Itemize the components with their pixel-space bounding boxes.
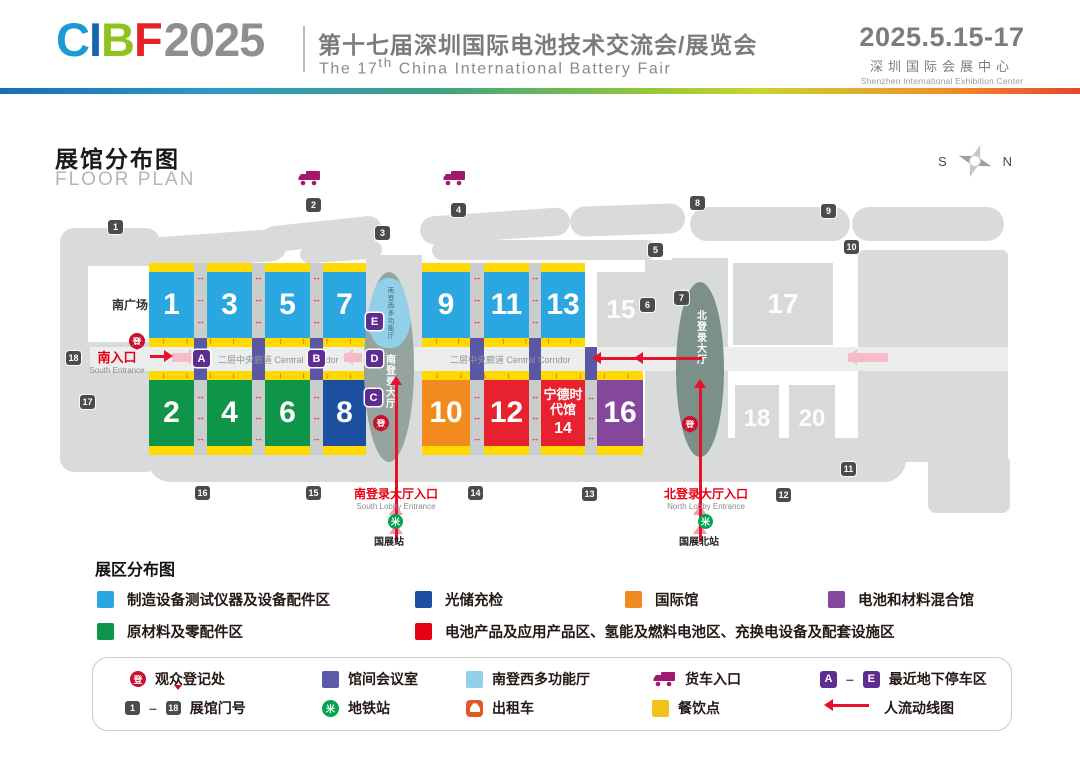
- transfer-arrow-icon: [312, 316, 321, 326]
- hall-2: 2: [149, 380, 194, 446]
- gate-16: 16: [195, 486, 210, 500]
- transfer-arrow-icon: [531, 272, 540, 282]
- legend-truck-label: 货车入口: [685, 669, 741, 689]
- metro-icon: 米: [388, 514, 403, 529]
- transfer-arrow-icon: [254, 391, 263, 401]
- flow-up-arrow-icon: [457, 337, 461, 346]
- flow-down-arrow-icon: [208, 371, 212, 380]
- transfer-arrow-icon: [531, 433, 540, 443]
- legend-swatch-yellow: [652, 700, 669, 717]
- gate-10: 10: [844, 240, 859, 254]
- metro-glyph: 米: [391, 515, 400, 528]
- legend-food-label: 餐饮点: [678, 698, 720, 718]
- transfer-arrow-icon: [473, 433, 482, 443]
- transfer-arrows: [194, 385, 207, 449]
- transfer-arrow-icon: [312, 433, 321, 443]
- flow-up-arrow-icon: [208, 337, 212, 346]
- gate-15: 15: [306, 486, 321, 500]
- hall-17: 17: [733, 263, 833, 345]
- transfer-arrow-icon: [254, 316, 263, 326]
- transfer-arrow-icon: [312, 294, 321, 304]
- logo-letter: F: [134, 13, 162, 66]
- cibf-logo: CIBF2025: [56, 16, 264, 63]
- legend-mixed-label: 电池和材料混合馆: [858, 589, 974, 610]
- transfer-arrows: [252, 266, 265, 332]
- legend-metro: 米 地铁站: [322, 698, 390, 718]
- registration-badge: 登: [682, 416, 698, 432]
- gate-13: 13: [582, 487, 597, 501]
- gate-badge-icon: 1: [125, 701, 140, 715]
- entrance-arrow-head: [164, 350, 179, 362]
- transfer-arrow-icon: [196, 272, 205, 282]
- transfer-arrow-icon: [196, 433, 205, 443]
- transfer-arrow-icon: [531, 412, 540, 422]
- south-entrance-en: South Entrance: [86, 366, 148, 375]
- transfer-arrows: [252, 385, 265, 449]
- transfer-arrow-icon: [531, 316, 540, 326]
- flow-down-arrow-icon: [255, 371, 259, 380]
- legend-meeting-label: 馆间会议室: [348, 669, 418, 689]
- parking-badge-c: C: [365, 389, 382, 406]
- transfer-arrow-icon: [196, 391, 205, 401]
- building-shape: [570, 203, 686, 237]
- transfer-arrow-icon: [312, 272, 321, 282]
- compass-north-label: N: [1003, 154, 1012, 169]
- logo-letter: C: [56, 13, 89, 66]
- legend-materials-label: 原材料及零配件区: [127, 621, 243, 642]
- legend-registration-label: 观众登记处: [155, 669, 225, 689]
- dash: –: [846, 671, 854, 687]
- flow-up-arrow-icon: [546, 337, 550, 346]
- hall-12: 12: [484, 380, 529, 446]
- north-lobby-entrance-label: 北登录大厅入口 North Lobby Entrance: [640, 485, 772, 511]
- registration-badge: 登: [373, 415, 389, 431]
- event-title-en-pre: The 17: [319, 60, 378, 77]
- transfer-arrows: [194, 266, 207, 332]
- registration-glyph: 登: [376, 417, 385, 430]
- building-shape: [852, 207, 1004, 241]
- hall-18: 18: [735, 385, 779, 453]
- flow-down-arrow-icon: [278, 371, 282, 380]
- food-strip: [422, 263, 585, 272]
- gate-3: 3: [375, 226, 390, 240]
- legend-swatch-purple: [828, 591, 845, 608]
- flow-down-arrow-icon: [530, 371, 534, 380]
- flow-up-arrow-icon: [325, 337, 329, 346]
- legend-food: 餐饮点: [652, 698, 720, 718]
- transfer-arrows: [310, 266, 323, 332]
- flow-down-arrow-icon: [554, 371, 558, 380]
- corridor-up-arrows: [152, 337, 362, 346]
- hall-10: 10: [422, 380, 470, 446]
- hall-15: 15: [597, 272, 645, 347]
- legend-international: 国际馆: [625, 589, 699, 610]
- flow-up-arrow-icon: [501, 337, 505, 346]
- transfer-arrow-icon: [254, 294, 263, 304]
- legend-flow: 人流动线图: [884, 698, 954, 718]
- hall-3: 3: [207, 272, 252, 338]
- legend-gates-label: 展馆门号: [190, 698, 246, 718]
- hall-9: 9: [422, 272, 470, 338]
- flow-up-arrow-icon: [348, 337, 352, 346]
- parking-badge-e: E: [366, 313, 383, 330]
- event-dates: 2025.5.15-17: [848, 22, 1036, 53]
- hall-16: 16: [597, 380, 643, 446]
- flow-down-arrow-icon: [602, 371, 606, 380]
- flow-line-arrow-icon: [827, 704, 869, 707]
- flow-up-arrow-icon: [569, 337, 573, 346]
- legend-mixed: 电池和材料混合馆: [828, 589, 974, 610]
- event-title-en: The 17th China International Battery Fai…: [319, 55, 671, 78]
- flow-route-head: [390, 370, 402, 385]
- hall-1: 1: [149, 272, 194, 338]
- corridor-down-arrows: [152, 371, 362, 380]
- south-lobby-entrance-cn: 南登录大厅入口: [330, 485, 462, 502]
- compass: S N: [938, 140, 1012, 182]
- hall-14-name: 宁德时代馆: [541, 388, 585, 418]
- legend-swatch-red: [415, 623, 432, 640]
- event-title-en-sup: th: [378, 55, 392, 70]
- transfer-arrow-icon: [473, 412, 482, 422]
- dash: –: [149, 700, 157, 716]
- transfer-arrow-icon: [196, 412, 205, 422]
- logo-letter: B: [101, 13, 134, 66]
- gate-1: 1: [108, 220, 123, 234]
- legend-equipment: 制造设备测试仪器及设备配件区: [97, 589, 330, 610]
- flow-down-arrow-icon: [626, 371, 630, 380]
- metro-station-north: 国展北站: [679, 533, 719, 548]
- hall-6: 6: [265, 380, 310, 446]
- flow-down-arrow-icon: [578, 371, 582, 380]
- transfer-arrows: [470, 385, 484, 449]
- compass-star-icon: [954, 140, 996, 182]
- truck-icon: [652, 671, 676, 688]
- hall-8: 8: [323, 380, 366, 446]
- transfer-arrow-icon: [587, 392, 596, 402]
- venue-cn: 深圳国际会展中心: [848, 56, 1036, 75]
- legend-international-label: 国际馆: [655, 589, 699, 610]
- legend-taxi: 出租车: [466, 698, 534, 718]
- hall-11: 11: [484, 272, 529, 338]
- corridor-up-arrows: [425, 337, 582, 346]
- parking-badge-a-icon: A: [820, 671, 837, 688]
- flow-down-arrow-icon: [325, 371, 329, 380]
- multifunction-hall-label: 南登西多功能厅: [384, 287, 394, 340]
- legend-swatch-green: [97, 623, 114, 640]
- flow-up-arrow-icon: [524, 337, 528, 346]
- flow-up-arrow-icon: [302, 337, 306, 346]
- flow-up-arrow-icon: [479, 337, 483, 346]
- flow-route-line: [594, 357, 702, 360]
- transfer-arrow-icon: [587, 412, 596, 422]
- legend-flow-label: 人流动线图: [884, 698, 954, 718]
- hall-14-number: 14: [554, 420, 572, 438]
- zone-legend-title: 展区分布图: [95, 556, 175, 580]
- transfer-arrow-icon: [531, 294, 540, 304]
- transfer-arrow-icon: [587, 432, 596, 442]
- flow-down-arrow-icon: [348, 371, 352, 380]
- transfer-arrow-icon: [473, 391, 482, 401]
- gate-9: 9: [821, 204, 836, 218]
- registration-glyph: 登: [133, 673, 142, 686]
- south-lobby-entrance-en: South Lobby Entrance: [330, 502, 462, 511]
- hall-5: 5: [265, 272, 310, 338]
- legend-swatch-orange: [625, 591, 642, 608]
- truck-icon: [442, 170, 466, 187]
- venue-en: Shenzhen International Exhibition Center: [848, 76, 1036, 86]
- legend-registration: 登 观众登记处: [130, 669, 225, 689]
- plan-title-en: FLOOR PLAN: [55, 169, 195, 191]
- legend-taxi-label: 出租车: [492, 698, 534, 718]
- transfer-arrows: [585, 387, 597, 447]
- transfer-arrow-icon: [254, 412, 263, 422]
- legend-storage: 光储充检: [415, 589, 503, 610]
- hall-13: 13: [541, 272, 585, 338]
- transfer-arrow-icon: [473, 316, 482, 326]
- hall-20: 20: [789, 385, 835, 453]
- flow-up-arrow-icon: [185, 337, 189, 346]
- gate-11: 11: [841, 462, 856, 476]
- floor-plan-page: CIBF2025 第十七届深圳国际电池技术交流会/展览会 The 17th Ch…: [0, 0, 1080, 763]
- legend-truck: 货车入口: [652, 669, 741, 689]
- metro-station-south: 国展站: [374, 533, 404, 548]
- registration-badge-icon: 登: [130, 671, 146, 687]
- gate-badge-icon: 18: [166, 701, 181, 715]
- legend-swatch-darkblue: [415, 591, 432, 608]
- registration-glyph: 登: [685, 418, 694, 431]
- parking-badge-e-icon: E: [863, 671, 880, 688]
- legend-swatch-indigo: [322, 671, 339, 688]
- legend-parking-label: 最近地下停车区: [889, 669, 987, 689]
- gate-4: 4: [451, 203, 466, 217]
- legend-multifunction: 南登西多功能厅: [466, 669, 590, 689]
- gate-18: 18: [66, 351, 81, 365]
- metro-icon: 米: [322, 700, 339, 717]
- header-divider: [303, 26, 305, 72]
- header-gradient-bar: [0, 88, 1080, 94]
- building-shape: [432, 240, 657, 260]
- legend-meeting-room: 馆间会议室: [322, 669, 418, 689]
- parking-badge-d: D: [366, 350, 383, 367]
- logo-letter: I: [89, 13, 101, 66]
- metro-glyph: 米: [701, 515, 710, 528]
- flow-route-head: [628, 352, 643, 364]
- transfer-arrow-icon: [196, 294, 205, 304]
- metro-glyph: 米: [326, 702, 335, 715]
- hall-14-catl: 宁德时代馆 14: [541, 380, 585, 446]
- gate-2: 2: [306, 198, 321, 212]
- building-shape: [928, 455, 1010, 513]
- legend-multifunction-label: 南登西多功能厅: [492, 669, 590, 689]
- flow-down-arrow-icon: [483, 371, 487, 380]
- flow-up-arrow-icon: [255, 337, 259, 346]
- flow-down-arrow-icon: [185, 371, 189, 380]
- flow-up-arrow-icon: [434, 337, 438, 346]
- legend-materials: 原材料及零配件区: [97, 621, 243, 642]
- corridor-down-arrows: [425, 371, 640, 380]
- building-shape: [74, 412, 156, 470]
- hall-7: 7: [323, 272, 366, 338]
- compass-south-label: S: [938, 154, 947, 169]
- flow-pink-arrow: [848, 353, 888, 362]
- transfer-arrows: [470, 266, 484, 332]
- south-lobby: 南登西多功能厅 南登录大厅: [364, 272, 414, 462]
- flow-down-arrow-icon: [435, 371, 439, 380]
- gate-7: 7: [674, 291, 689, 305]
- legend-battery: 电池产品及应用产品区、氢能及燃料电池区、充换电设备及配套设施区: [415, 621, 895, 642]
- flow-down-arrow-icon: [459, 371, 463, 380]
- flow-down-arrow-icon: [302, 371, 306, 380]
- flow-up-arrow-icon: [232, 337, 236, 346]
- transfer-arrows: [529, 266, 541, 332]
- transfer-arrow-icon: [312, 412, 321, 422]
- event-dates-block: 2025.5.15-17 深圳国际会展中心 Shenzhen Internati…: [848, 22, 1036, 86]
- corridor-label: 二层中央廊道 Central Corridor: [450, 353, 571, 366]
- south-lobby-entrance-label: 南登录大厅入口 South Lobby Entrance: [330, 485, 462, 511]
- taxi-icon: [466, 700, 483, 717]
- registration-glyph: 登: [132, 335, 141, 348]
- gate-12: 12: [776, 488, 791, 502]
- gate-8: 8: [690, 196, 705, 210]
- flow-up-arrow-icon: [162, 337, 166, 346]
- transfer-arrow-icon: [254, 433, 263, 443]
- flow-route-head: [694, 373, 706, 388]
- hall-4: 4: [207, 380, 252, 446]
- gate-5: 5: [648, 243, 663, 257]
- flow-route-head: [586, 352, 601, 364]
- gate-17: 17: [80, 395, 95, 409]
- flow-down-arrow-icon: [506, 371, 510, 380]
- transfer-arrow-icon: [254, 272, 263, 282]
- legend-equipment-label: 制造设备测试仪器及设备配件区: [127, 589, 330, 610]
- gate-6: 6: [640, 298, 655, 312]
- transfer-arrows: [310, 385, 323, 449]
- transfer-arrow-icon: [473, 272, 482, 282]
- legend-parking: A – E 最近地下停车区: [820, 669, 987, 689]
- legend-swatch-lightblue: [97, 591, 114, 608]
- gate-14: 14: [468, 486, 483, 500]
- north-lobby-entrance-cn: 北登录大厅入口: [640, 485, 772, 502]
- transfer-arrows: [529, 385, 541, 449]
- event-title-en-post: China International Battery Fair: [393, 60, 672, 77]
- parking-badge-b: B: [308, 350, 325, 367]
- transfer-arrow-icon: [531, 391, 540, 401]
- parking-badge-a: A: [193, 350, 210, 367]
- flow-down-arrow-icon: [232, 371, 236, 380]
- transfer-arrow-icon: [473, 294, 482, 304]
- legend-swatch-multifunc: [466, 671, 483, 688]
- north-lobby-entrance-en: North Lobby Entrance: [640, 502, 772, 511]
- legend-storage-label: 光储充检: [445, 589, 503, 610]
- registration-badge: 登: [129, 333, 145, 349]
- legend-gates: 1 – 18 展馆门号: [125, 698, 246, 718]
- legend-metro-label: 地铁站: [348, 698, 390, 718]
- flow-pink-arrow: [344, 353, 362, 362]
- transfer-arrow-icon: [196, 316, 205, 326]
- metro-icon: 米: [698, 514, 713, 529]
- flow-up-arrow-icon: [278, 337, 282, 346]
- flow-down-arrow-icon: [162, 371, 166, 380]
- logo-year: 2025: [164, 13, 265, 66]
- legend-battery-label: 电池产品及应用产品区、氢能及燃料电池区、充换电设备及配套设施区: [445, 621, 895, 642]
- truck-icon: [297, 170, 321, 187]
- transfer-arrow-icon: [312, 391, 321, 401]
